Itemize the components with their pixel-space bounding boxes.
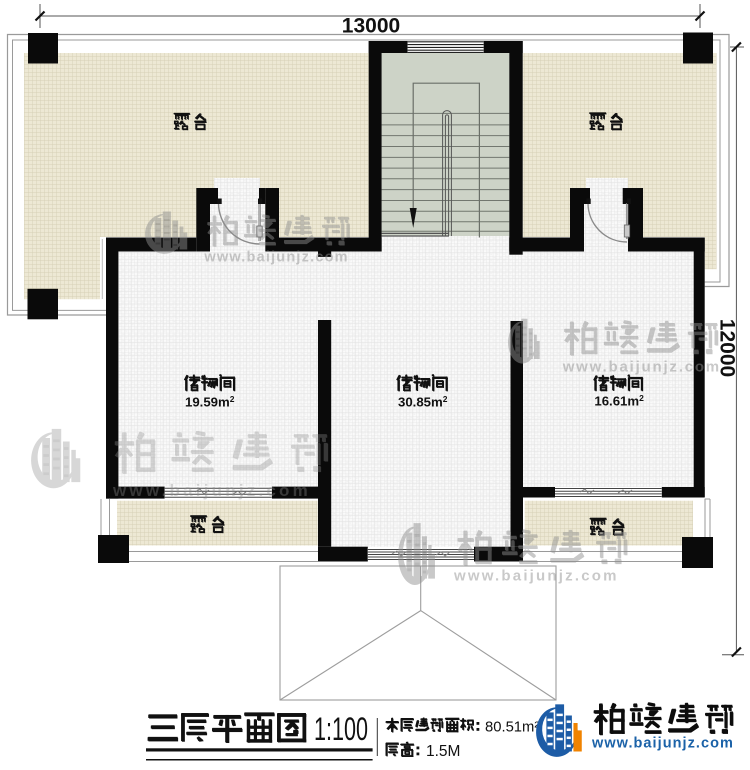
svg-text:www.baijunjz.com: www.baijunjz.com bbox=[591, 736, 734, 752]
svg-text:30.85m2: 30.85m2 bbox=[398, 394, 448, 410]
svg-text:19.59m2: 19.59m2 bbox=[185, 394, 235, 410]
svg-text:www.baijunjz.com: www.baijunjz.com bbox=[453, 568, 619, 585]
svg-text:www.baijunjz.com: www.baijunjz.com bbox=[562, 359, 721, 376]
svg-text:80.51m²: 80.51m² bbox=[485, 720, 539, 736]
svg-text:1.5M: 1.5M bbox=[426, 743, 460, 760]
svg-text:www.baijunjz.com: www.baijunjz.com bbox=[203, 250, 348, 266]
svg-text:16.61m2: 16.61m2 bbox=[594, 393, 644, 409]
svg-text:13000: 13000 bbox=[342, 15, 400, 38]
svg-text:1:100: 1:100 bbox=[314, 711, 368, 747]
svg-text:www.baijunjz.com: www.baijunjz.com bbox=[112, 481, 311, 500]
